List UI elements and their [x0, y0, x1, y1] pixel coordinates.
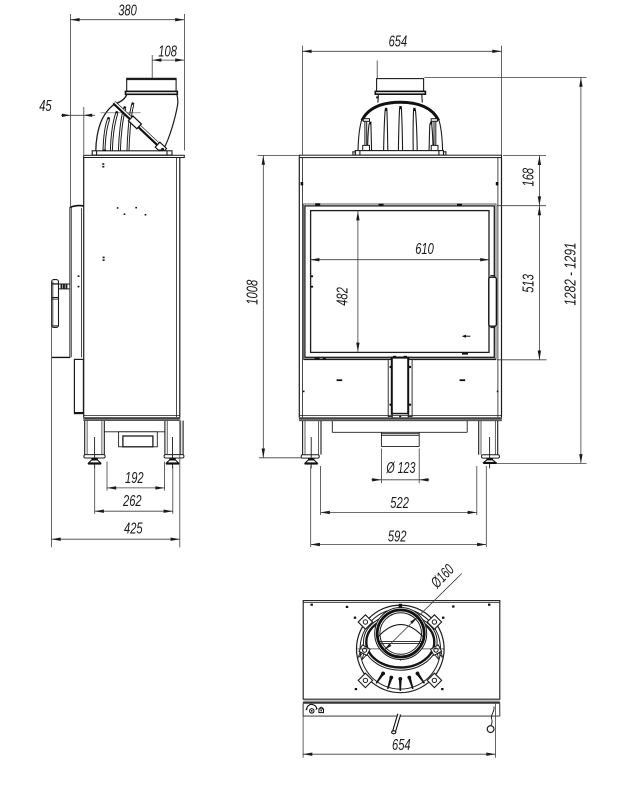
svg-text:592: 592	[388, 528, 407, 545]
svg-text:654: 654	[389, 34, 408, 51]
svg-text:45: 45	[39, 98, 52, 115]
svg-text:108: 108	[158, 43, 177, 60]
svg-text:380: 380	[118, 3, 137, 20]
svg-text:425: 425	[124, 521, 143, 538]
svg-text:1008: 1008	[245, 279, 262, 304]
svg-text:168: 168	[521, 168, 538, 187]
svg-text:610: 610	[415, 241, 434, 258]
svg-text:Ø 123: Ø 123	[386, 460, 416, 477]
svg-text:1282 - 1291: 1282 - 1291	[563, 243, 580, 306]
svg-text:192: 192	[125, 470, 144, 487]
svg-text:513: 513	[521, 274, 538, 293]
svg-text:482: 482	[335, 287, 352, 306]
svg-text:262: 262	[122, 493, 142, 510]
svg-text:522: 522	[390, 495, 409, 512]
svg-text:654: 654	[392, 737, 411, 754]
